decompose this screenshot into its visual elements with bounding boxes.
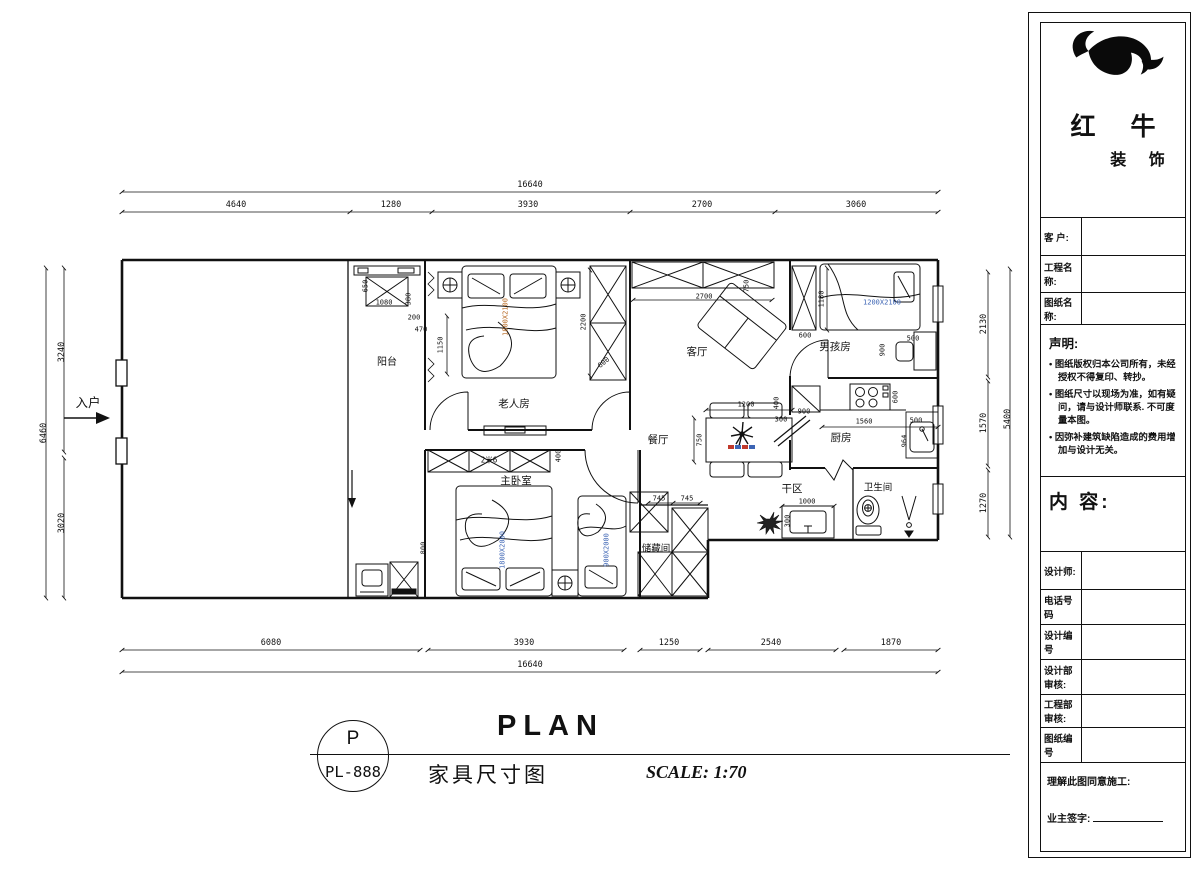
field-label: 设计编号 bbox=[1041, 625, 1082, 659]
room-label-dry-area: 干区 bbox=[782, 484, 803, 495]
field-label: 电话号码 bbox=[1041, 590, 1082, 624]
dim-int: 750 bbox=[744, 280, 751, 293]
dim-int: 800 bbox=[421, 542, 428, 555]
dim-top-overall: 16640 bbox=[517, 181, 543, 190]
dim-int: 1560 bbox=[856, 419, 873, 426]
field-row-design-review: 设计部审核: bbox=[1041, 659, 1185, 694]
field-label: 工程名称: bbox=[1041, 256, 1082, 292]
room-label-elder-room: 老人房 bbox=[498, 399, 530, 410]
dim-int: 1150 bbox=[438, 337, 445, 354]
dim-int: 300 bbox=[785, 515, 792, 528]
dim-bottom: 1870 bbox=[881, 639, 901, 648]
dim-int: 2200 bbox=[581, 314, 588, 331]
field-value[interactable] bbox=[1082, 695, 1185, 727]
brand-name-line2: 装 饰 bbox=[1110, 146, 1173, 170]
field-value[interactable] bbox=[1082, 590, 1185, 624]
exterior-walls bbox=[122, 260, 938, 598]
title-divider-rule bbox=[310, 754, 1010, 755]
signature-label-text: 业主签字: bbox=[1047, 814, 1090, 825]
bath-fixtures bbox=[757, 496, 916, 538]
field-row-design-no: 设计编号 bbox=[1041, 624, 1185, 659]
room-label-master: 主卧室 bbox=[500, 476, 532, 487]
dim-int: 745 bbox=[653, 496, 666, 503]
dim-int: 1080 bbox=[376, 300, 393, 307]
dim-int: 600 bbox=[799, 333, 812, 340]
field-row-designer: 设计师: bbox=[1041, 551, 1185, 589]
room-label-dining: 餐厅 bbox=[648, 435, 669, 446]
dim-bottom-overall: 16640 bbox=[517, 661, 543, 670]
room-label-storage: 储藏间 bbox=[642, 544, 671, 554]
room-label-bathroom: 卫生间 bbox=[864, 483, 893, 493]
title-block: 红 牛 装 饰 客 户: 工程名称: 图纸名称: 声明: • 图纸版权归本公司所… bbox=[1040, 22, 1186, 852]
interior-walls bbox=[425, 260, 938, 598]
entry-arrow bbox=[64, 412, 356, 508]
field-label: 图纸编号 bbox=[1041, 728, 1082, 762]
dim-int: 400 bbox=[556, 450, 563, 463]
declaration-item: • 图纸尺寸以现场为准，如有疑问，请与设计师联系. 不可度量本图。 bbox=[1049, 388, 1180, 427]
dim-int: 600 bbox=[893, 391, 900, 404]
dim-int: 300 bbox=[775, 417, 788, 424]
signature-line[interactable] bbox=[1093, 811, 1163, 822]
dim-int: 745 bbox=[681, 496, 694, 503]
drawing-stamp: P PL-888 bbox=[317, 720, 389, 792]
field-label: 设计部审核: bbox=[1041, 660, 1082, 694]
bed-size-label: 1200X2100 bbox=[863, 300, 901, 307]
storage-shelves bbox=[638, 508, 708, 596]
room-label-kitchen: 厨房 bbox=[831, 433, 852, 444]
room-label-boy-room: 男孩房 bbox=[819, 342, 851, 353]
dim-bottom: 2540 bbox=[761, 639, 781, 648]
field-row-phone: 电话号码 bbox=[1041, 589, 1185, 624]
dim-right: 2130 bbox=[980, 314, 989, 334]
company-logo-cell: 红 牛 装 饰 bbox=[1041, 23, 1185, 217]
field-value[interactable] bbox=[1082, 660, 1185, 694]
declaration-block: 声明: • 图纸版权归本公司所有，未经授权不得复印、转抄。• 图纸尺寸以现场为准… bbox=[1041, 324, 1185, 476]
stamp-code: PL-888 bbox=[318, 763, 388, 781]
elder-room-furniture bbox=[428, 266, 626, 435]
dim-int: 380 bbox=[406, 293, 413, 306]
field-value[interactable] bbox=[1082, 218, 1185, 255]
dining-furniture bbox=[706, 403, 792, 477]
dim-int: 600 bbox=[597, 356, 611, 369]
field-value[interactable] bbox=[1082, 293, 1185, 324]
stamp-letter: P bbox=[318, 728, 388, 750]
content-block: 内 容: bbox=[1041, 476, 1185, 551]
field-row-project-name: 工程名称: bbox=[1041, 255, 1185, 292]
approval-block: 理解此图同意施工: 业主签字: bbox=[1041, 762, 1185, 851]
dim-top: 1280 bbox=[381, 201, 401, 210]
dim-left-overall: 6460 bbox=[40, 423, 49, 443]
table-tiny-label-marks bbox=[728, 445, 755, 449]
dim-int: 1000 bbox=[799, 499, 816, 506]
door-swings bbox=[430, 340, 853, 503]
dim-top: 3930 bbox=[518, 201, 538, 210]
dim-int: 500 bbox=[910, 418, 923, 425]
dim-left: 3240 bbox=[58, 342, 67, 362]
dim-int: 650 bbox=[363, 280, 370, 293]
field-row-drawing-no: 图纸编号 bbox=[1041, 727, 1185, 762]
bed-size-label: 1800X2000 bbox=[500, 531, 507, 569]
dim-right: 1270 bbox=[980, 493, 989, 513]
declaration-item: • 因弥补建筑缺陷造成的费用增加与设计无关。 bbox=[1049, 431, 1180, 457]
declaration-items: • 图纸版权归本公司所有，未经授权不得复印、转抄。• 图纸尺寸以现场为准，如有疑… bbox=[1049, 358, 1180, 457]
dim-bottom: 1250 bbox=[659, 639, 679, 648]
boy-room-furniture bbox=[792, 264, 936, 370]
declaration-item: • 图纸版权归本公司所有，未经授权不得复印、转抄。 bbox=[1049, 358, 1180, 384]
field-label: 设计师: bbox=[1041, 552, 1082, 589]
dim-left: 3020 bbox=[58, 513, 67, 533]
dim-top: 4640 bbox=[226, 201, 246, 210]
dimension-lines bbox=[46, 192, 1010, 672]
entry-label: 入户 bbox=[75, 397, 100, 410]
approval-line: 理解此图同意施工: bbox=[1047, 773, 1181, 788]
dim-right-overall: 5400 bbox=[1004, 409, 1013, 429]
field-value[interactable] bbox=[1082, 625, 1185, 659]
field-label: 图纸名称: bbox=[1041, 293, 1082, 324]
brand-name-line1: 红 牛 bbox=[1071, 107, 1170, 143]
dim-bottom: 6080 bbox=[261, 639, 281, 648]
scale-text: SCALE: 1:70 bbox=[646, 762, 747, 783]
master-bedroom-furniture bbox=[428, 450, 668, 596]
field-row-drawing-name: 图纸名称: bbox=[1041, 292, 1185, 324]
declaration-heading: 声明: bbox=[1049, 333, 1180, 352]
window-symbols bbox=[116, 286, 943, 514]
chandelier-symbol bbox=[731, 422, 753, 446]
drawing-name: 家具尺寸图 bbox=[428, 759, 548, 789]
dim-right: 1570 bbox=[980, 413, 989, 433]
dim-int: 900 bbox=[798, 409, 811, 416]
field-row-engineering-review: 工程部审核: bbox=[1041, 694, 1185, 727]
dim-int: 750 bbox=[697, 434, 704, 447]
field-label: 工程部审核: bbox=[1041, 695, 1082, 727]
dim-int: 470 bbox=[415, 327, 428, 334]
wardrobe-label: 2米6 bbox=[481, 456, 498, 464]
bed-size-label: 900X2000 bbox=[604, 533, 611, 567]
living-room-furniture bbox=[632, 262, 788, 370]
dim-int: 900 bbox=[880, 344, 887, 357]
bed-size-label: 1800X2100 bbox=[503, 298, 510, 336]
owner-signature-label: 业主签字: bbox=[1047, 810, 1181, 825]
dim-int: 500 bbox=[907, 336, 920, 343]
dim-int: 2700 bbox=[696, 294, 713, 301]
dim-int: 200 bbox=[408, 315, 421, 322]
dim-top: 2700 bbox=[692, 201, 712, 210]
dim-int: 964 bbox=[902, 435, 909, 448]
bull-logo-icon bbox=[1060, 23, 1166, 105]
field-value[interactable] bbox=[1082, 552, 1185, 589]
dim-int: 400 bbox=[774, 397, 781, 410]
field-value[interactable] bbox=[1082, 256, 1185, 292]
field-value[interactable] bbox=[1082, 728, 1185, 762]
field-row-customer: 客 户: bbox=[1041, 217, 1185, 255]
field-label: 客 户: bbox=[1041, 218, 1082, 255]
light-walls bbox=[348, 260, 853, 598]
dim-int: 1180 bbox=[819, 291, 826, 308]
dim-int: 1200 bbox=[738, 402, 755, 409]
kitchen-fixtures bbox=[792, 384, 938, 458]
plan-title: PLAN bbox=[497, 710, 604, 743]
content-heading: 内 容: bbox=[1049, 487, 1185, 514]
dim-top: 3060 bbox=[846, 201, 866, 210]
balcony-fixtures bbox=[354, 266, 420, 597]
room-label-balcony: 阳台 bbox=[377, 358, 397, 368]
dim-bottom: 3930 bbox=[514, 639, 534, 648]
room-label-living: 客厅 bbox=[687, 347, 708, 358]
